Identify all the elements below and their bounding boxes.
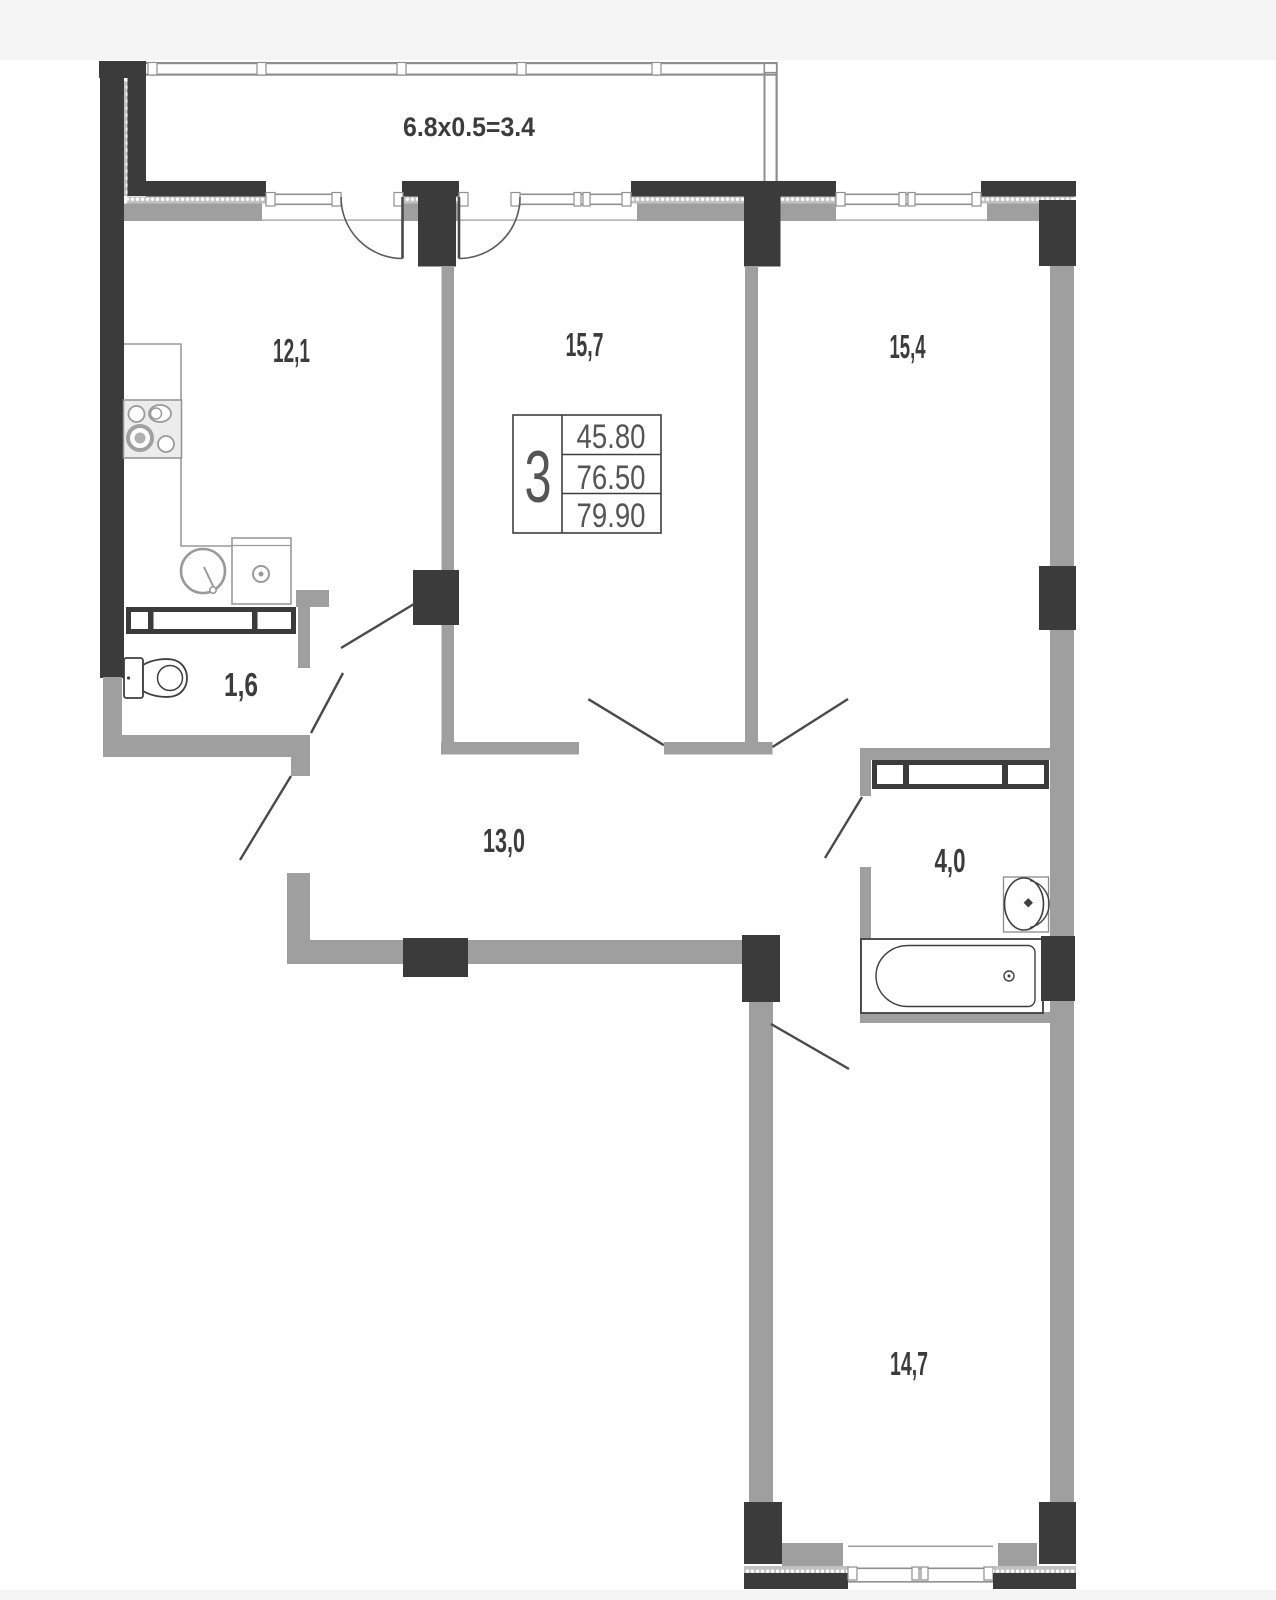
svg-text:12,1: 12,1 bbox=[273, 332, 310, 369]
svg-text:15,4: 15,4 bbox=[890, 328, 926, 365]
svg-text:3: 3 bbox=[525, 437, 552, 518]
svg-text:13,0: 13,0 bbox=[483, 822, 525, 859]
svg-text:4,0: 4,0 bbox=[935, 842, 966, 879]
svg-text:79.90: 79.90 bbox=[577, 497, 646, 535]
svg-text:6.8x0.5=3.4: 6.8x0.5=3.4 bbox=[403, 112, 535, 142]
svg-text:15,7: 15,7 bbox=[566, 326, 604, 363]
svg-text:14,7: 14,7 bbox=[890, 1345, 928, 1382]
svg-text:45.80: 45.80 bbox=[577, 418, 646, 456]
svg-text:1,6: 1,6 bbox=[224, 666, 258, 703]
svg-text:76.50: 76.50 bbox=[577, 459, 646, 497]
